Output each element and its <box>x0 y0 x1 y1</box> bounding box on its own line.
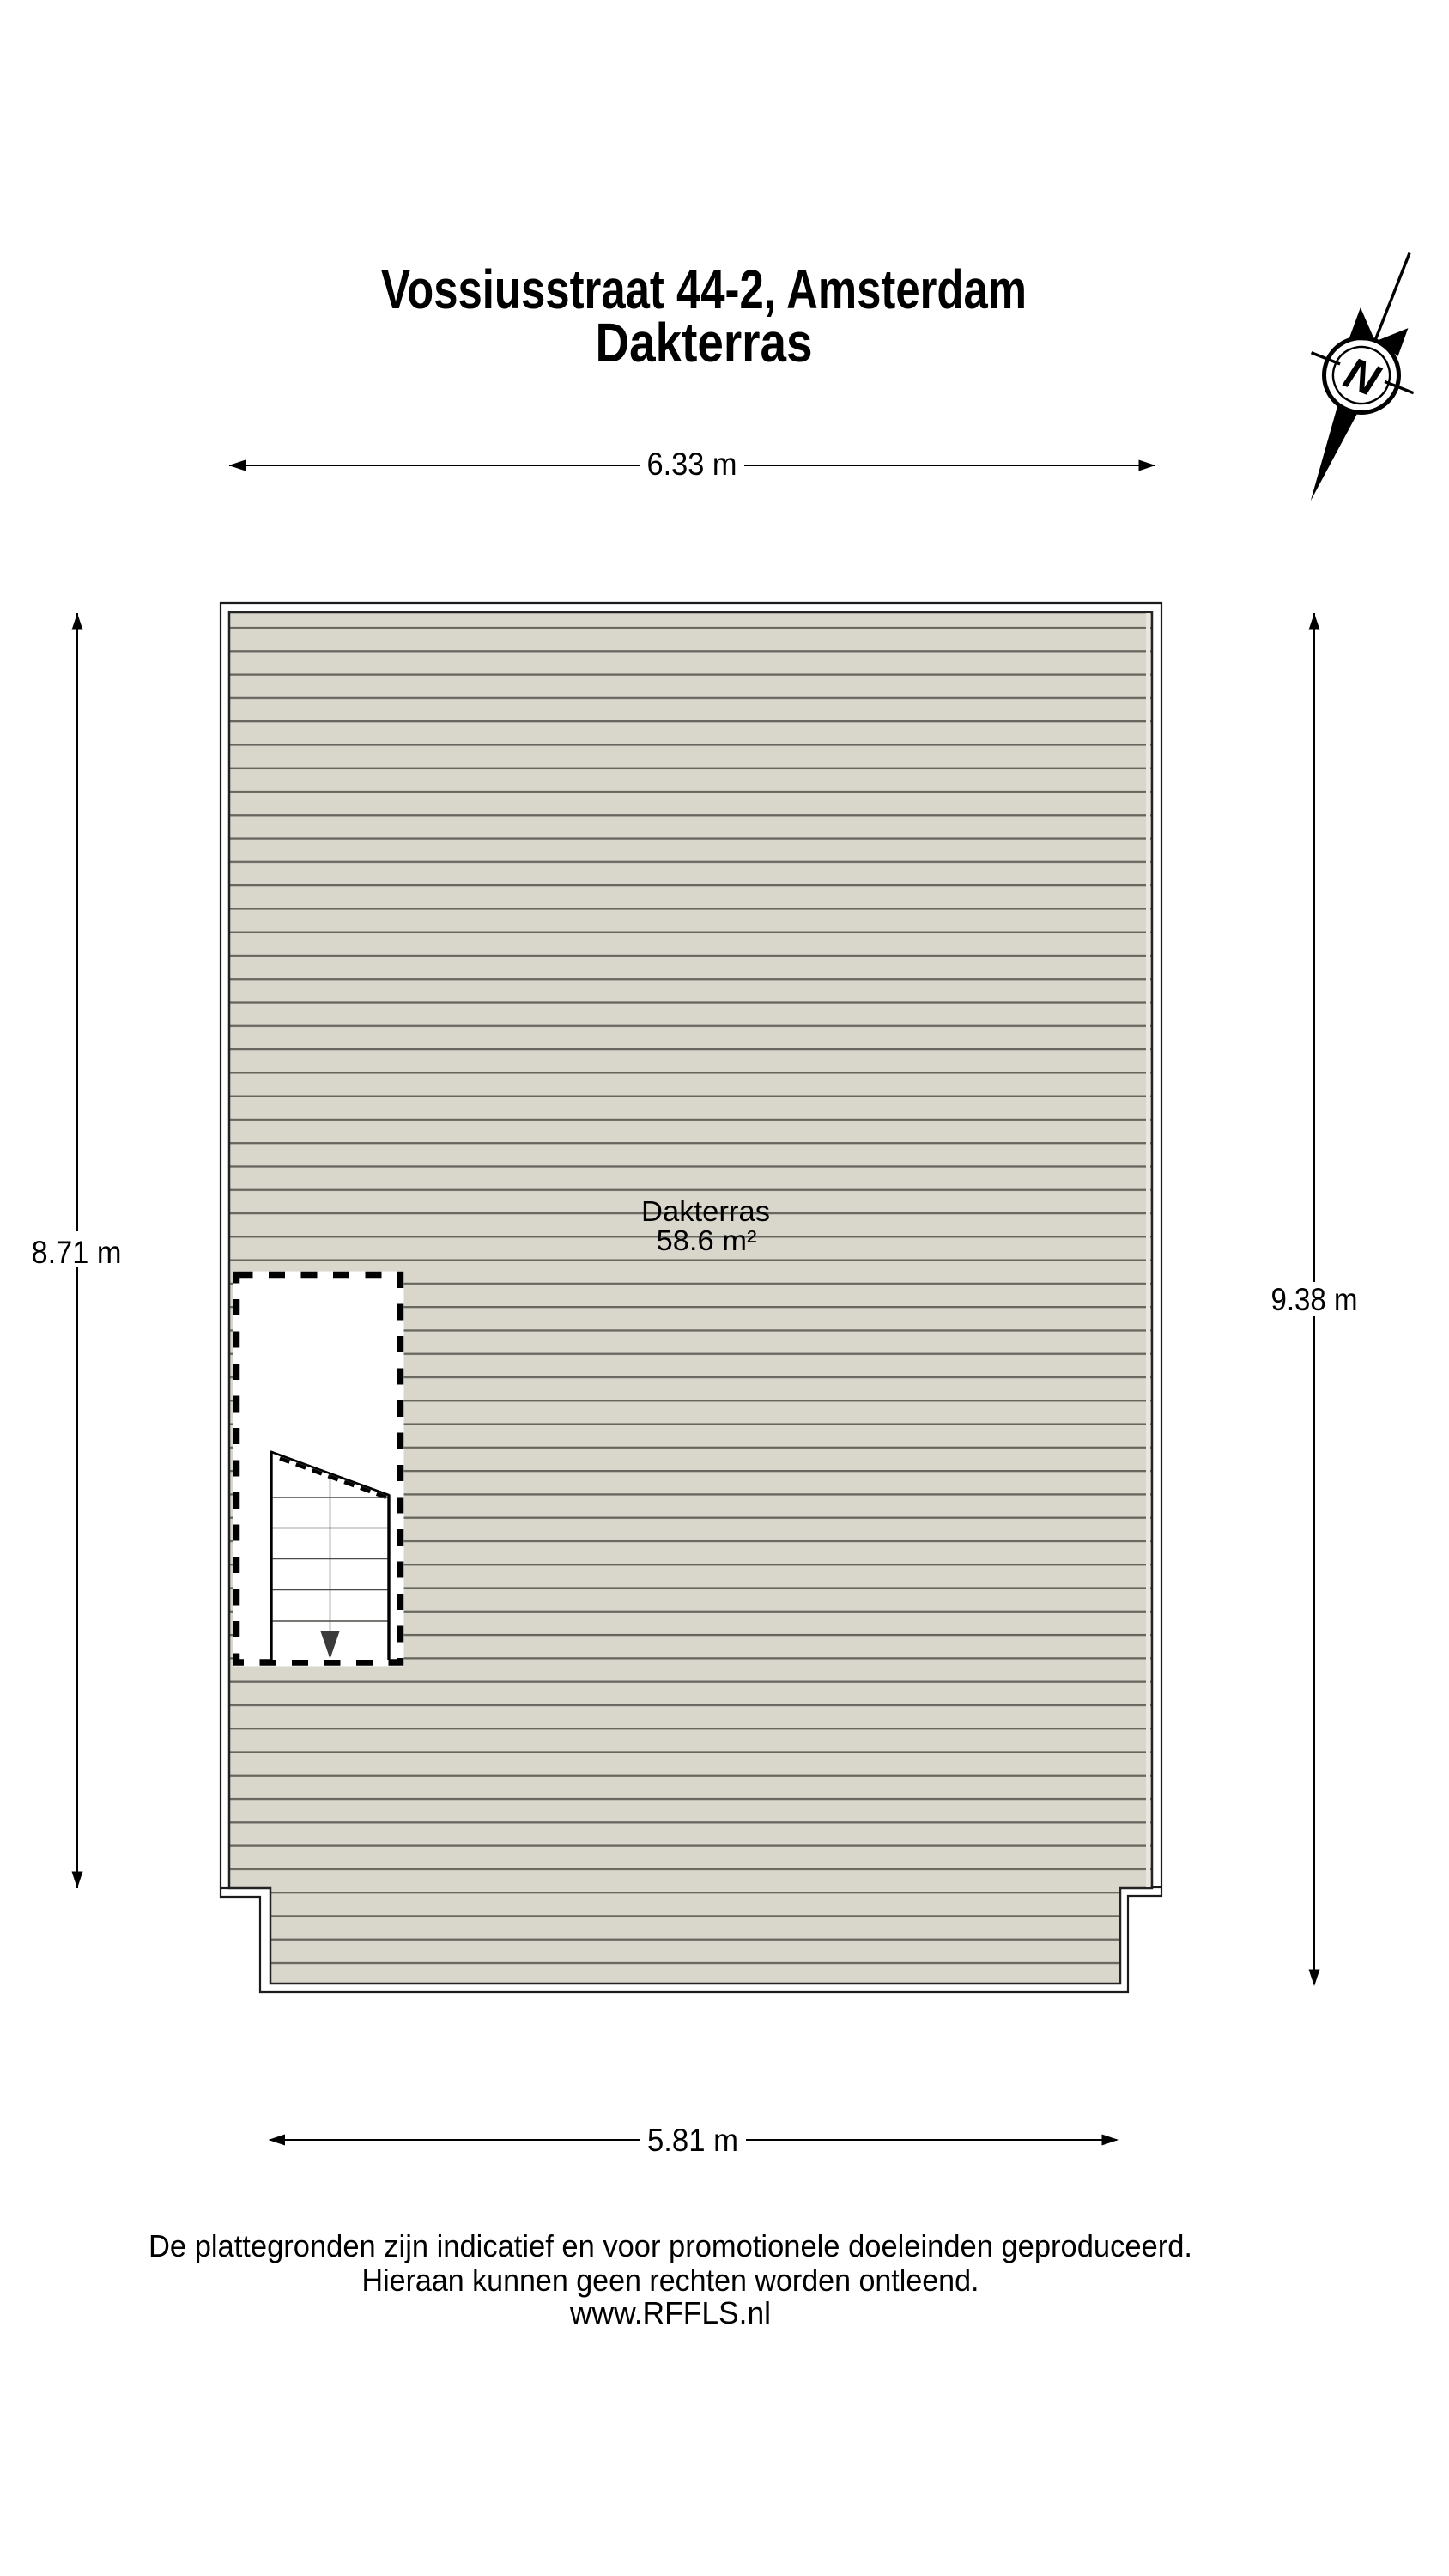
svg-text:De plattegronden zijn indicati: De plattegronden zijn indicatief en voor… <box>149 2228 1192 2263</box>
svg-text:58.6 m²: 58.6 m² <box>657 1224 757 1256</box>
svg-text:Dakterras: Dakterras <box>641 1195 770 1227</box>
svg-text:Dakterras: Dakterras <box>596 312 813 374</box>
svg-text:9.38 m: 9.38 m <box>1271 1282 1358 1317</box>
svg-text:5.81 m: 5.81 m <box>647 2123 738 2158</box>
svg-text:Hieraan kunnen geen rechten wo: Hieraan kunnen geen rechten worden ontle… <box>362 2263 979 2298</box>
svg-text:www.RFFLS.nl: www.RFFLS.nl <box>569 2295 771 2330</box>
svg-text:6.33 m: 6.33 m <box>647 447 737 482</box>
svg-text:8.71 m: 8.71 m <box>32 1235 122 1270</box>
